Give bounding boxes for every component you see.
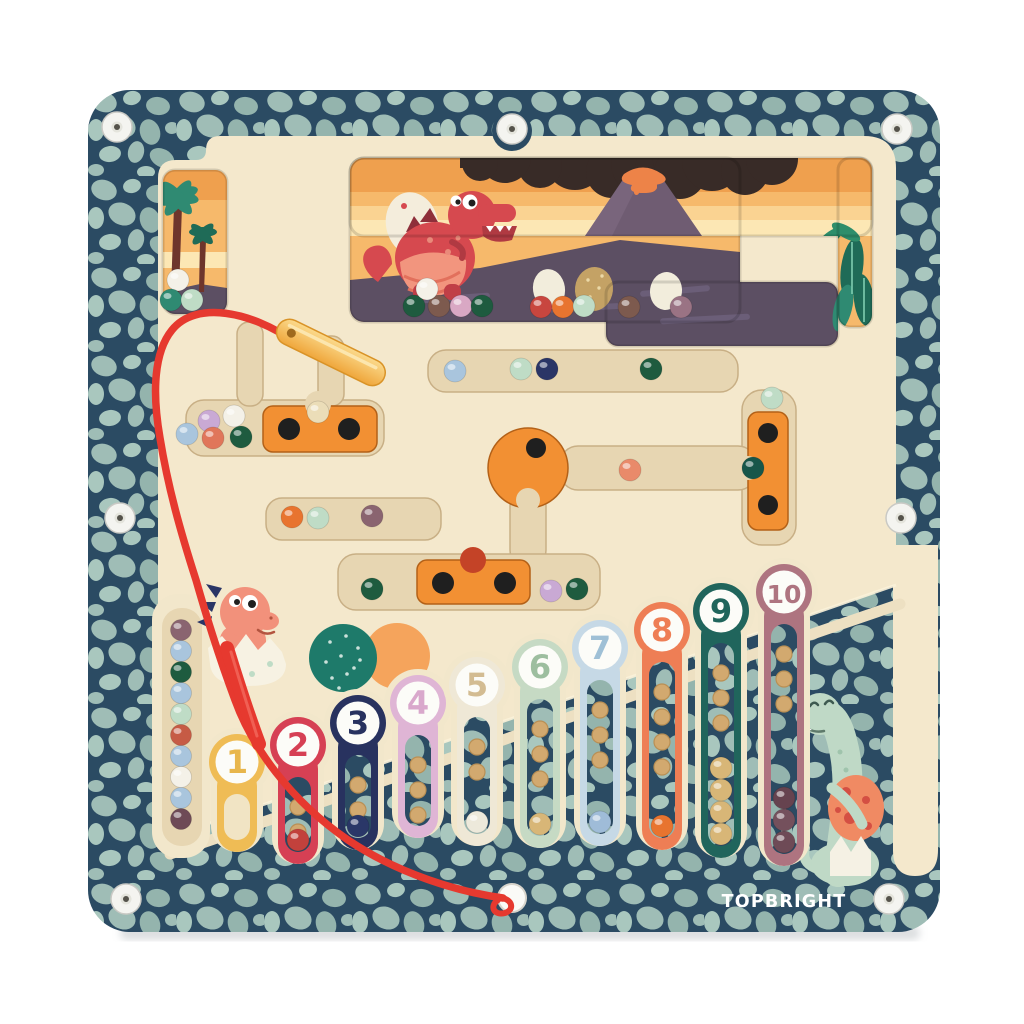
tube-4: 4 bbox=[384, 669, 452, 838]
ball bbox=[471, 295, 493, 317]
ball bbox=[710, 779, 732, 801]
slot-hole bbox=[713, 715, 729, 731]
number-label: 9 bbox=[710, 592, 732, 630]
ball bbox=[510, 358, 532, 380]
slot-hole bbox=[532, 721, 548, 737]
slot-hole bbox=[592, 727, 608, 743]
ball bbox=[347, 815, 369, 837]
brand-logo: TOPBRIGHT bbox=[722, 892, 847, 912]
ball bbox=[307, 401, 329, 423]
ball bbox=[540, 580, 562, 602]
number-label: 7 bbox=[589, 629, 611, 667]
ball bbox=[742, 457, 764, 479]
screw bbox=[105, 503, 135, 533]
ball bbox=[710, 801, 732, 823]
ball bbox=[552, 296, 574, 318]
ball bbox=[670, 296, 692, 318]
ball bbox=[444, 360, 466, 382]
slot-hole bbox=[532, 771, 548, 787]
ball bbox=[230, 426, 252, 448]
slot-hole bbox=[532, 746, 548, 762]
ball bbox=[171, 746, 192, 767]
ball bbox=[167, 269, 189, 291]
slot-hole bbox=[469, 739, 485, 755]
slot-hole bbox=[654, 734, 670, 750]
slot-hole bbox=[469, 764, 485, 780]
ball bbox=[416, 278, 438, 300]
slot-hole bbox=[350, 777, 366, 793]
ball bbox=[307, 507, 329, 529]
ball bbox=[710, 823, 732, 845]
ball bbox=[202, 427, 224, 449]
slot-hole bbox=[592, 702, 608, 718]
ball bbox=[566, 578, 588, 600]
ball bbox=[466, 811, 488, 833]
magnetic-maze-board: 12345678910 TOPBRIGHT bbox=[0, 0, 1024, 1024]
slot-hole bbox=[776, 671, 792, 687]
ball bbox=[171, 788, 192, 809]
slot-hole bbox=[713, 690, 729, 706]
ball bbox=[589, 811, 611, 833]
number-label: 2 bbox=[287, 726, 309, 764]
ball bbox=[171, 767, 192, 788]
ball bbox=[618, 296, 640, 318]
screw bbox=[102, 112, 132, 142]
slot-hole bbox=[654, 709, 670, 725]
number-label: 1 bbox=[226, 743, 248, 781]
ball bbox=[619, 459, 641, 481]
screw bbox=[886, 503, 916, 533]
screw bbox=[874, 884, 904, 914]
ball bbox=[160, 289, 182, 311]
ball bbox=[171, 683, 192, 704]
tube-10: 10 bbox=[750, 558, 818, 866]
ball bbox=[223, 405, 245, 427]
number-label: 8 bbox=[651, 611, 673, 649]
ball bbox=[181, 289, 203, 311]
ball bbox=[640, 358, 662, 380]
ball bbox=[530, 296, 552, 318]
tube-slot bbox=[224, 794, 250, 840]
ball bbox=[281, 506, 303, 528]
ball bbox=[171, 620, 192, 641]
slot-hole bbox=[410, 807, 426, 823]
slot-hole bbox=[592, 752, 608, 768]
slot-hole bbox=[410, 757, 426, 773]
ball bbox=[287, 829, 309, 851]
ball bbox=[761, 387, 783, 409]
slot-hole bbox=[776, 696, 792, 712]
number-label: 6 bbox=[529, 648, 551, 686]
ball bbox=[176, 423, 198, 445]
tube-5: 5 bbox=[443, 651, 511, 846]
number-label: 4 bbox=[407, 684, 429, 722]
tube-6: 6 bbox=[506, 633, 574, 848]
ball bbox=[171, 704, 192, 725]
ball bbox=[773, 787, 795, 809]
ball bbox=[773, 831, 795, 853]
tube-8: 8 bbox=[628, 596, 696, 850]
ball bbox=[651, 815, 673, 837]
ball bbox=[171, 641, 192, 662]
screw bbox=[882, 114, 912, 144]
ball bbox=[171, 809, 192, 830]
ball bbox=[171, 662, 192, 683]
dotted-circle bbox=[309, 624, 377, 692]
tube-7: 7 bbox=[566, 614, 634, 846]
board-right-tab bbox=[893, 545, 938, 876]
number-label: 3 bbox=[347, 704, 369, 742]
number-label: 5 bbox=[466, 666, 488, 704]
screw bbox=[111, 884, 141, 914]
ball bbox=[773, 809, 795, 831]
slot-hole bbox=[410, 782, 426, 798]
ball bbox=[361, 505, 383, 527]
ball bbox=[710, 757, 732, 779]
ball bbox=[361, 578, 383, 600]
product-photo: 12345678910 TOPBRIGHT bbox=[0, 0, 1024, 1024]
ball bbox=[536, 358, 558, 380]
slot-hole bbox=[713, 665, 729, 681]
number-label: 10 bbox=[767, 580, 802, 609]
ball bbox=[573, 295, 595, 317]
screw bbox=[497, 114, 527, 144]
ball bbox=[529, 813, 551, 835]
slot-hole bbox=[654, 684, 670, 700]
tube-9: 9 bbox=[687, 577, 755, 858]
slot-hole bbox=[654, 759, 670, 775]
slot-hole bbox=[776, 646, 792, 662]
ball bbox=[171, 725, 192, 746]
tube-2: 2 bbox=[264, 711, 332, 864]
ball bbox=[450, 295, 472, 317]
